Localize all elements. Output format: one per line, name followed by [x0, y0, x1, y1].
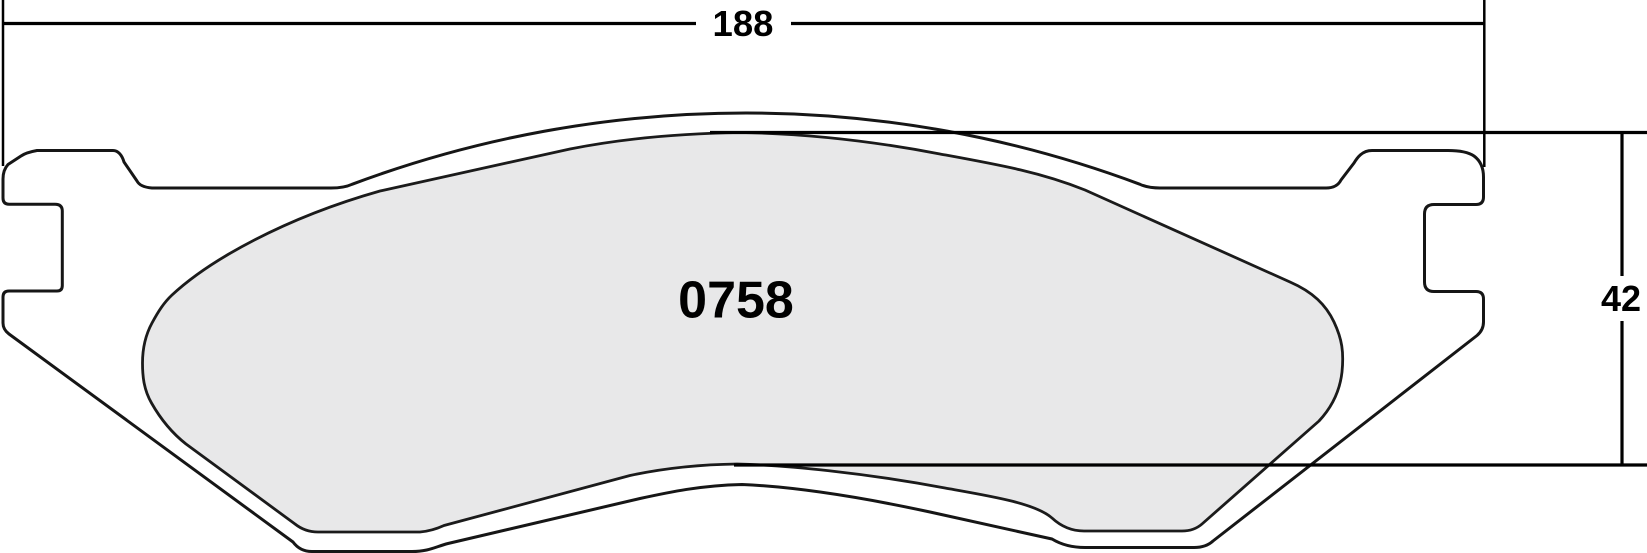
svg-text:188: 188: [713, 3, 774, 44]
svg-text:0758: 0758: [678, 272, 794, 330]
svg-text:42: 42: [1601, 278, 1641, 319]
